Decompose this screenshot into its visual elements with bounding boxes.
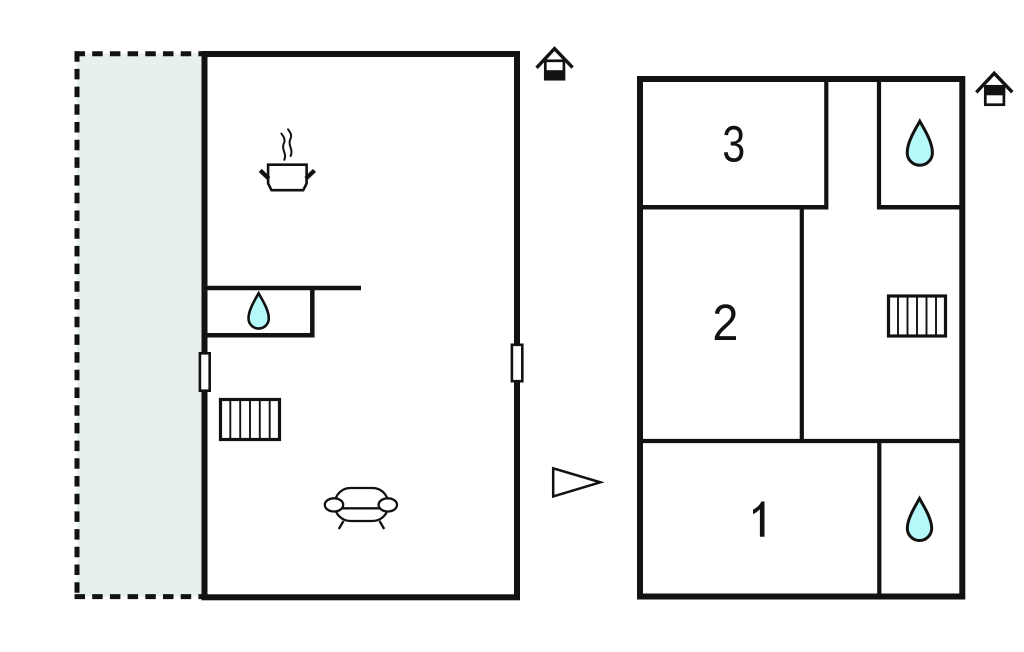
svg-text:3: 3: [722, 115, 745, 172]
svg-text:2: 2: [712, 294, 738, 351]
